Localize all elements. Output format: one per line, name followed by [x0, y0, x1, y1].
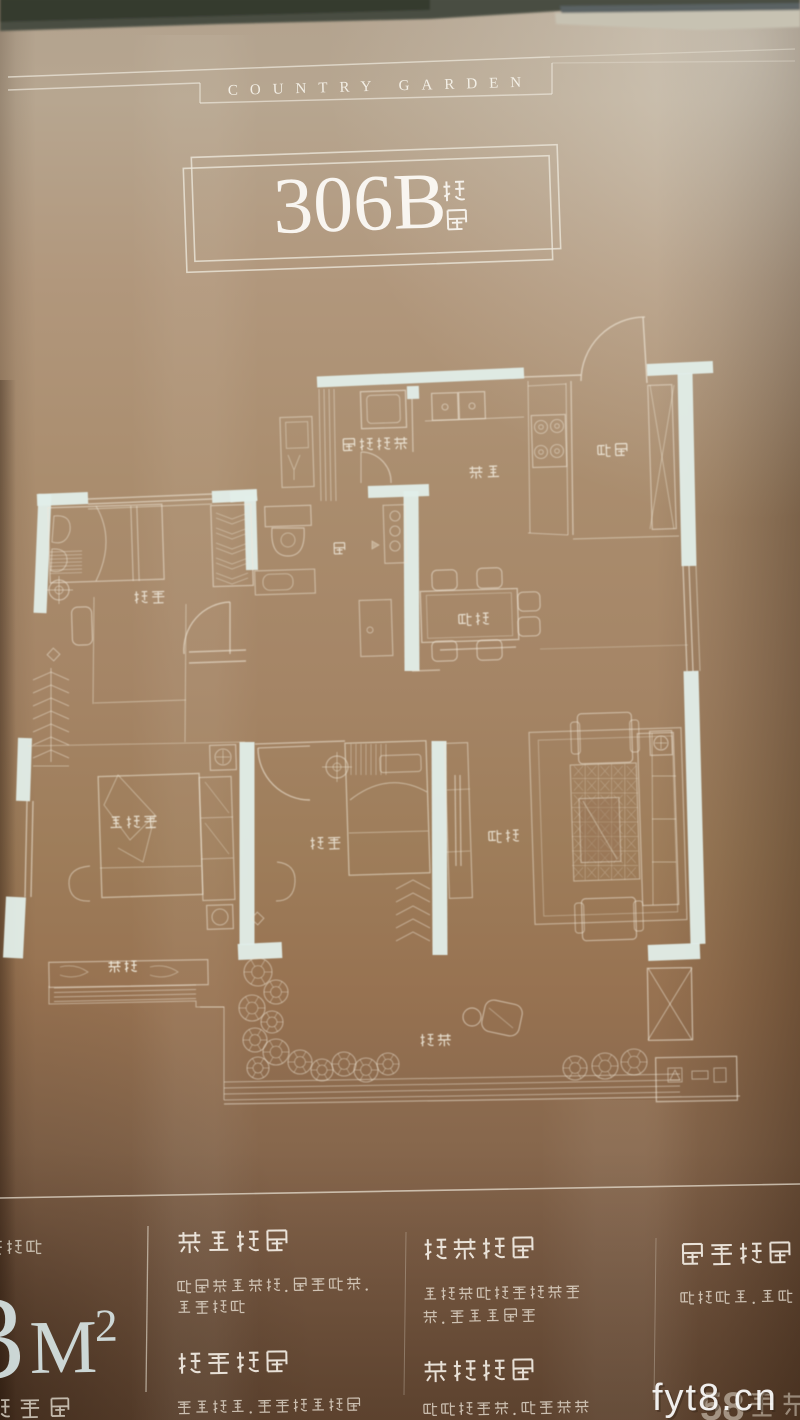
svg-text:M: M	[29, 1305, 98, 1390]
svg-text:fyt8.cn: fyt8.cn	[652, 1377, 778, 1419]
svg-text:306B: 306B	[272, 157, 448, 251]
svg-text:3: 3	[0, 1272, 25, 1404]
svg-text:2: 2	[94, 1300, 118, 1351]
